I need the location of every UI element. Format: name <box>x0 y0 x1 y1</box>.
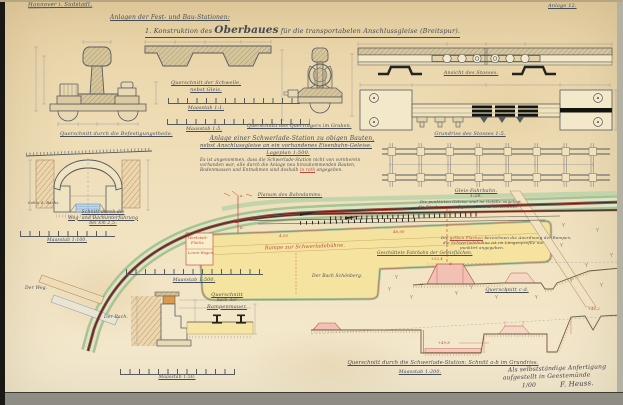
plan-scale-label: Maasstab 1:500. <box>173 278 216 283</box>
subtitle-pre: 1. Konstruktion des <box>145 28 212 35</box>
ramp-dim-length: 46,00 <box>393 230 405 234</box>
channel-sleeper-profile-drawing <box>141 39 275 73</box>
track-panel-plan-drawing <box>374 139 616 191</box>
profile-ab-scale: Maasstab 1:200. <box>399 370 442 375</box>
sleeper-caption-line2: nebst Gleis. <box>190 88 222 93</box>
station-heading-line2: nebst Anschlussgleise an ein vorhandenes… <box>200 144 372 149</box>
bach-label: Der Bach. <box>104 316 128 321</box>
sheet-edge-top <box>0 0 623 2</box>
rail-joint-plan-drawing <box>352 82 620 138</box>
profile-level-2: +49,8 <box>438 342 450 346</box>
station-heading-line1: Anlage einer Schwerlade-Station zu obige… <box>210 136 375 142</box>
ramp-dim-width: 4,50 <box>279 234 288 238</box>
loren-label: Loren-Wagen. <box>188 252 214 256</box>
station-note-red-word: in roth <box>300 167 315 172</box>
station-note-line3-post: angegeben. <box>315 167 343 172</box>
rampwall-scale-label: Maasstab 1:50. <box>158 376 195 381</box>
girder-end-section-drawing <box>278 44 360 128</box>
sheet-edge-bottom <box>0 392 623 405</box>
weg-label: Der Weg. <box>25 287 47 292</box>
scale-1-1-label: Maasstab 1:1. <box>188 106 224 111</box>
werkstatt-label-line2: Fläche. <box>191 242 205 246</box>
section-mark-d: d. <box>449 262 453 266</box>
track-note-line2: die Böschungen auf gutem Damme verschütt… <box>418 205 519 209</box>
legend-line3: punktirt angegeben. <box>460 246 504 250</box>
joint-view-caption: Ansicht des Stosses. <box>444 71 499 76</box>
station-note-line3: Bodenmassen und Entnahmen sind deshalb i… <box>200 168 343 172</box>
drawing-sheet: Hannover i. Südstadt. Anlage 12. Anlagen… <box>0 0 623 405</box>
rampwall-caption-line3: Rampenmauer. <box>207 305 247 310</box>
scalebar-1-500 <box>126 269 263 275</box>
subtitle-main-word: Oberbaues <box>214 25 278 36</box>
fastening-caption: Querschnitt durch die Befestigungstheile… <box>60 132 173 137</box>
subtitle-post: für die transportabelen Anschlussgleise … <box>281 28 460 35</box>
sleeper-caption-line1: Querschnitt der Schwelle, <box>171 81 241 86</box>
section-mark-c: c. <box>449 209 453 213</box>
sheet-title: Anlagen der Fest- und Bau-Stationen: <box>110 15 230 21</box>
joint-plan-caption: Grundriss des Stosses 1:5. <box>434 132 505 137</box>
sheet-edge-left <box>0 0 5 405</box>
signature-name: F. Heuss. <box>560 380 594 389</box>
section-mark-a: a. <box>240 194 244 198</box>
section-mark-b: b. <box>240 226 244 230</box>
scale-1-5-label: Maasstab 1:5. <box>186 127 222 132</box>
embankment-caption: Planum des Bahndamms. <box>258 193 323 198</box>
station-heading-line3: Lageplan 1:500. <box>266 151 309 156</box>
profile-ab-drawing <box>309 303 621 365</box>
corner-note: Hannover i. Südstadt. <box>28 3 92 9</box>
tunnel-caption-line3: bei km 2,5. <box>89 222 117 227</box>
sheet-number: Anlage 12. <box>548 4 577 9</box>
sheet-subtitle: 1. Konstruktion des Oberbaues für die tr… <box>145 25 460 38</box>
scalebar-1-1 <box>168 98 300 104</box>
bach-schoenberg-label: Der Bach Schönberg. <box>312 275 362 280</box>
scalebar-1-100 <box>20 231 115 237</box>
girder-caption: Querschnitt des Querträgers im Graben. <box>247 124 352 129</box>
tunnel-scale-label: Maasstab 1:100. <box>47 239 87 244</box>
sheet-edge-right <box>617 0 623 392</box>
signature-date: 1/00 <box>522 382 536 389</box>
profile-level-3: +46,2 <box>588 308 600 312</box>
profile-cd-caption: Querschnitt c-d. <box>485 288 528 293</box>
station-note-line3-pre: Bodenmassen und Entnahmen sind deshalb <box>200 167 300 172</box>
fill-caption: Geschüttete Fahrbahn der Geleisflächen. <box>377 252 472 257</box>
tunnel-side-label: Sohle d. Bachs. <box>28 201 60 205</box>
profile-level-1: +52,4 <box>431 258 443 262</box>
